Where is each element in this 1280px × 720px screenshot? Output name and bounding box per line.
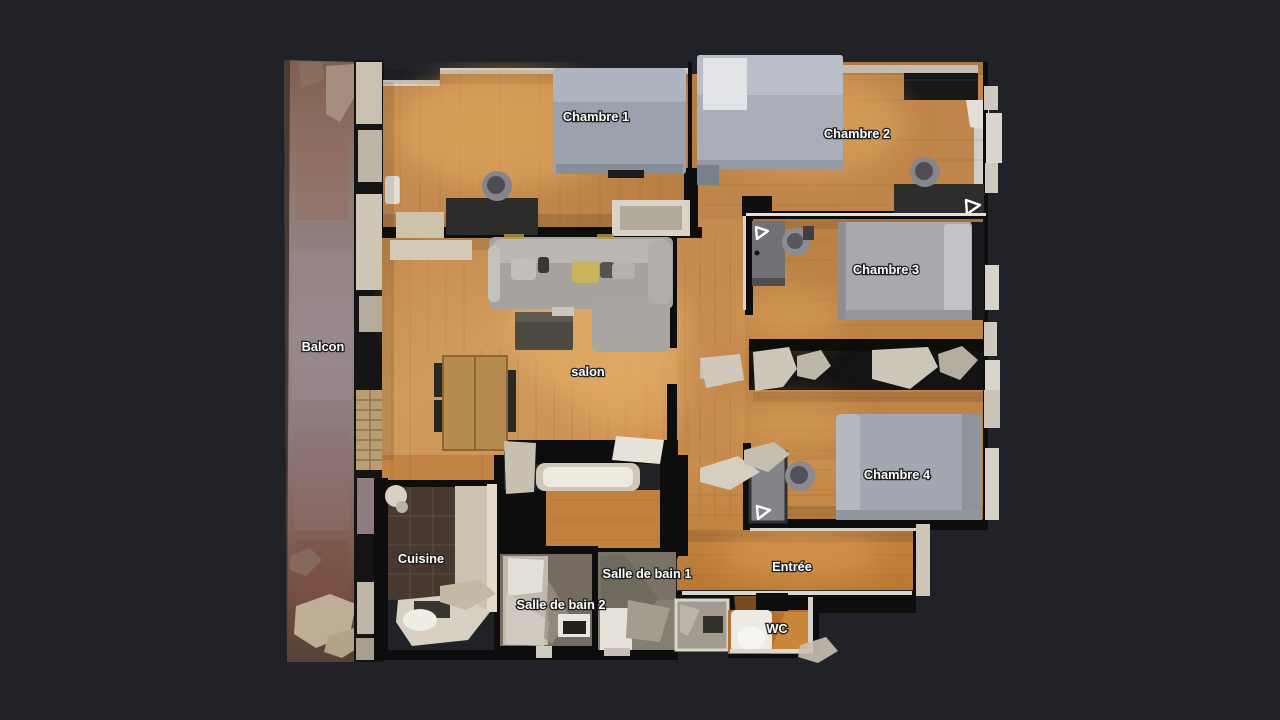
svg-text:Chambre 4: Chambre 4 (864, 467, 931, 482)
svg-text:Balcon: Balcon (302, 339, 345, 354)
svg-text:Salle de bain 1: Salle de bain 1 (603, 566, 692, 581)
svg-text:WC: WC (766, 621, 787, 636)
svg-text:Chambre 3: Chambre 3 (853, 262, 919, 277)
svg-text:Chambre 2: Chambre 2 (824, 126, 890, 141)
svg-text:Chambre 1: Chambre 1 (563, 109, 629, 124)
svg-text:salon: salon (571, 364, 605, 379)
svg-text:Entrée: Entrée (772, 559, 812, 574)
svg-text:Cuisine: Cuisine (398, 551, 444, 566)
svg-text:Salle de bain 2: Salle de bain 2 (517, 597, 606, 612)
